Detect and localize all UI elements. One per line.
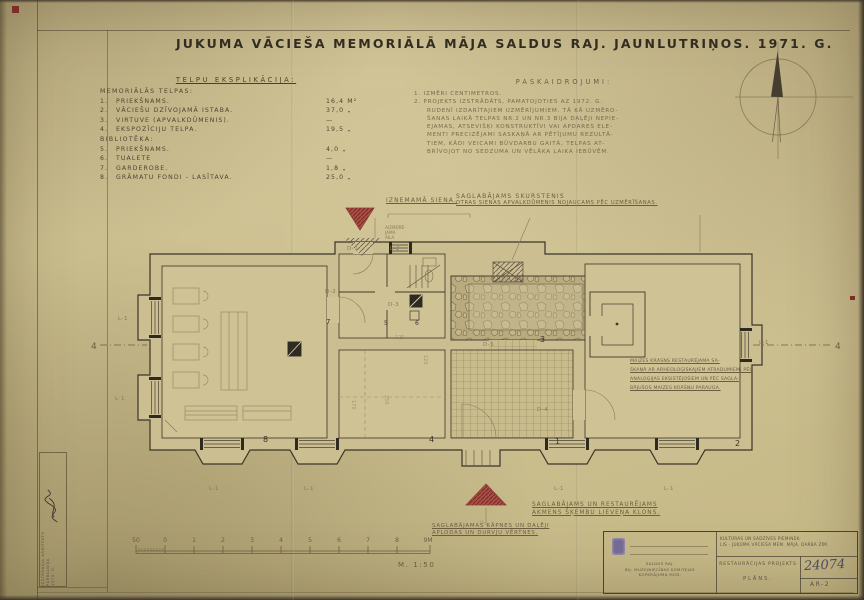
emblem — [612, 538, 625, 555]
note-line: 1. IZMĒRI CENTIMETROS. — [414, 90, 714, 98]
note-line: MENTI PRECIZĒJAMI SASKAŅĀ AR PĒTĪJUMU RE… — [414, 131, 714, 139]
scale-tick: 9M — [424, 537, 433, 544]
window-label: L-1 — [304, 486, 314, 492]
section-arrow-bottom — [466, 484, 506, 505]
legend-row: 2.VĀCIEŠU DZĪVOJAMĀ ISTABA.37,0 „ — [100, 106, 372, 116]
walled-niche-note: AIZMŪRĒ- JAMA AILA — [384, 225, 406, 240]
annotation-chimney: SAGLABĀJAMS SKURSTENIS OTRAS SIENAS APVA… — [456, 193, 658, 206]
north-needle — [769, 51, 784, 142]
note-line: BRĪVOJOT NO SEDZUMA UN VĒLĀKA LAIKA IEBŪ… — [414, 148, 714, 156]
org-line: KOPKRĀJUMA MOD. — [604, 572, 716, 578]
room-number: 2 — [735, 439, 741, 448]
note-line: AILA — [385, 235, 395, 240]
row-name: VIRTUVE (APVALKDŪMENIS). — [116, 116, 326, 126]
room-number: 1 — [555, 437, 561, 446]
annotation-text: AKMENS ŠĶEMBU LIEVEŅA KLONS. — [532, 510, 660, 518]
sheet-title: JUKUMA VĀCIEŠA MEMORIĀLĀ MĀJA SALDUS RAJ… — [176, 36, 796, 51]
row-num: 5. — [100, 145, 116, 155]
annotation-text: SAGLABĀJAMS UN RESTAURĒJAMS — [532, 502, 660, 510]
row-area: 19,5 „ — [326, 125, 372, 135]
legend-row: 8.GRĀMATU FONDI - LASĪTAVA.25,0 „ — [100, 173, 372, 183]
annotation-text: ANALOĢIJAS EKSISTĒJOŠIEM UN PĒC SAGLA- — [630, 375, 753, 384]
row-name: TUALETE — [116, 154, 326, 164]
window-label: L-1 — [664, 486, 674, 492]
row-num: 1. — [100, 97, 116, 107]
titleblock-hairline — [630, 554, 708, 555]
frame-line-horizontal — [37, 30, 850, 31]
window-label: L-2 — [390, 246, 400, 252]
section-label: 4 — [91, 342, 98, 352]
room-number: 6 — [415, 320, 420, 327]
door-label: D-5 — [483, 342, 494, 348]
dim: 170 — [350, 400, 356, 410]
legend-row: 1.PRIEKŠNAMS.16,4 M² — [100, 97, 372, 107]
row-name: GRĀMATU FONDI - LASĪTAVA. — [116, 173, 326, 183]
row-num: 6. — [100, 154, 116, 164]
window-label: L-1 — [759, 340, 769, 346]
paper-edge-bottom — [0, 595, 864, 600]
section-label: 4 — [835, 342, 842, 352]
row-area: — — [326, 116, 372, 126]
scale-tick: 50 — [132, 537, 140, 544]
annotation-porch: SAGLABĀJAMS UN RESTAURĒJAMS AKMENS ŠĶEMB… — [532, 502, 660, 517]
compass-rose — [733, 36, 857, 162]
scale-label: M. 1:50 — [398, 561, 435, 569]
row-num: 2. — [100, 106, 116, 116]
annotation-stairs: SAGLABĀJAMAS KĀPNES UN DAĻĒJI APLODAS UN… — [432, 523, 549, 538]
titleblock-divider — [800, 578, 857, 579]
sheet-name: PLĀNS. — [716, 576, 800, 582]
scale-bar: 50 0 1 2 3 4 5 6 7 8 9M — [128, 534, 440, 560]
window-label: L-1 — [115, 396, 125, 402]
titleblock-divider — [800, 556, 801, 593]
paper-edge-left — [0, 0, 7, 600]
note-line: ŠANAS LAIKĀ TELPAS NR.2 UN NR.3 BIJA DAĻ… — [414, 115, 714, 123]
row-name: PRIEKŠNAMS. — [116, 97, 326, 107]
row-name: GARDEROBE. — [116, 164, 326, 174]
dim: 125 — [395, 335, 405, 341]
door-label: D-2 — [325, 289, 336, 295]
legend-group-library: BIBLIOTĒKA: — [100, 135, 372, 145]
legend-row: 6.TUALETE— — [100, 154, 372, 164]
note-line: RUDENĪ IZDARĪTAJIEM UZMĒRĪJUMIEM. TĀ KĀ … — [414, 107, 714, 115]
row-num: 8. — [100, 173, 116, 183]
row-name: PRIEKŠNAMS. — [116, 145, 326, 155]
window-label: L-1 — [209, 486, 219, 492]
dim: 250 — [383, 395, 389, 405]
legend-group-memorial: MEMORIĀLĀS TELPAS: — [100, 87, 372, 97]
annotation-text: MAIZES KRĀSNS RESTAURĒJAMA SA- — [630, 357, 753, 366]
door-label: D-4 — [537, 407, 548, 413]
organization: SALDUS RAJ. BIJ. MUZEJNIECĪBAS KOMITEJAS… — [604, 561, 716, 578]
paper-edge-top — [0, 0, 864, 3]
row-num: 3. — [100, 116, 116, 126]
room-number: 7 — [326, 318, 331, 326]
row-num: 7. — [100, 164, 116, 174]
note-line: EJAMAS, ATSEVIŠĶI KONSTRUKTĪVI VAI APDAR… — [414, 123, 714, 131]
monument-name: KULTŪRAS UN SADZĪVES PIEMINEK- LIS - JUK… — [720, 536, 856, 548]
scale-tick: 8 — [395, 537, 399, 544]
annotation-text: OTRAS SIENAS APVALKDŪMENIS NOJAUCAMS PĒC… — [456, 200, 658, 206]
row-area: 1,8 „ — [326, 164, 372, 174]
scale-tick: 3 — [250, 537, 254, 544]
drafting-stamp: IZSTRĀDĀJA ARHITEKTS PĀRBAUDĪJA 1973. G. — [39, 452, 67, 587]
room-number: 8 — [263, 435, 269, 444]
row-area: 4,0 „ — [326, 145, 372, 155]
inventory-number: 24074 — [804, 557, 846, 574]
note-line: TIEM, KĀDI VEICAMI BŪVDARBU GAITĀ, TELPA… — [414, 140, 714, 148]
door-label: D-1 — [347, 246, 358, 252]
monument-line: LIS - JUKUMA VĀCIEŠA MEM. MĀJA. DARBA ZĪ… — [720, 542, 856, 548]
scale-tick: 7 — [366, 537, 370, 544]
sheet-code: AR-2 — [810, 581, 830, 588]
scale-tick: 2 — [221, 537, 225, 544]
frame-line-horizontal — [37, 587, 107, 588]
annotation-text: SAGLABĀJAMS SKURSTENIS — [456, 193, 658, 200]
legend-row: 5.PRIEKŠNAMS.4,0 „ — [100, 145, 372, 155]
legend-row: 7.GARDEROBE.1,8 „ — [100, 164, 372, 174]
row-area: — — [326, 154, 372, 164]
row-num: 4. — [100, 125, 116, 135]
annotation-text: APLODAS UN DURVJU VĒRTNES. — [432, 530, 549, 537]
building-walls — [138, 242, 762, 466]
window-label: L-1 — [554, 486, 564, 492]
row-area: 25,0 „ — [326, 173, 372, 183]
project-type: RESTAURĀCIJAS PROJEKTS — [716, 562, 800, 567]
scale-tick: 4 — [279, 537, 283, 544]
room-number: 4 — [429, 435, 435, 444]
door-label: D-3 — [388, 302, 399, 308]
room-legend: TELPU EKSPLIKĀCIJA: MEMORIĀLĀS TELPAS: 1… — [100, 76, 372, 183]
section-arrow-top — [346, 208, 374, 230]
scale-tick: 5 — [308, 537, 312, 544]
title-block: SALDUS RAJ. BIJ. MUZEJNIECĪBAS KOMITEJAS… — [603, 531, 858, 594]
row-name: VĀCIEŠU DZĪVOJAMĀ ISTABA. — [116, 106, 326, 116]
registration-mark — [12, 6, 19, 13]
titleblock-hairline — [630, 546, 708, 547]
scale-tick: 6 — [337, 537, 341, 544]
room-number: 3 — [540, 335, 546, 344]
row-name: EKSPOZĪCIJU TELPA. — [116, 125, 326, 135]
explanations: PASKAIDROJUMI: 1. IZMĒRI CENTIMETROS. 2.… — [414, 78, 714, 156]
row-area: 37,0 „ — [326, 106, 372, 116]
dim: 120 — [422, 355, 428, 365]
note-line: 2. PROJEKTS IZSTRĀDĀTS, PAMATOJOTIES AZ … — [414, 98, 714, 106]
explanations-heading: PASKAIDROJUMI: — [414, 78, 714, 86]
legend-row: 4.EKSPOZĪCIJU TELPA.19,5 „ — [100, 125, 372, 135]
annotation-text: BĀJUŠOS MAIZES KRĀŠŅU PARAUGA. — [630, 384, 753, 393]
legend-row: 3.VIRTUVE (APVALKDŪMENIS).— — [100, 116, 372, 126]
annotation-removable-wall: IZŅEMAMĀ SIENA. — [386, 197, 457, 204]
drawing-sheet: JUKUMA VĀCIEŠA MEMORIĀLĀ MĀJA SALDUS RAJ… — [0, 0, 864, 600]
window-label: L-1 — [118, 316, 128, 322]
legend-heading: TELPU EKSPLIKĀCIJA: — [100, 76, 372, 84]
frame-line-vertical — [37, 0, 38, 600]
room-number: 5 — [384, 320, 389, 327]
scale-tick: 1 — [192, 537, 196, 544]
annotation-text: IZŅEMAMĀ SIENA. — [386, 197, 457, 204]
annotation-bread-oven: MAIZES KRĀSNS RESTAURĒJAMA SA- SKAŅĀ AR … — [630, 357, 753, 393]
scale-tick: 0 — [163, 537, 167, 544]
annotation-text: SKAŅĀ AR ARHEOLOĢISKAJIEM ATRADUMIEM, PĒ… — [630, 366, 753, 375]
row-area: 16,4 M² — [326, 97, 372, 107]
